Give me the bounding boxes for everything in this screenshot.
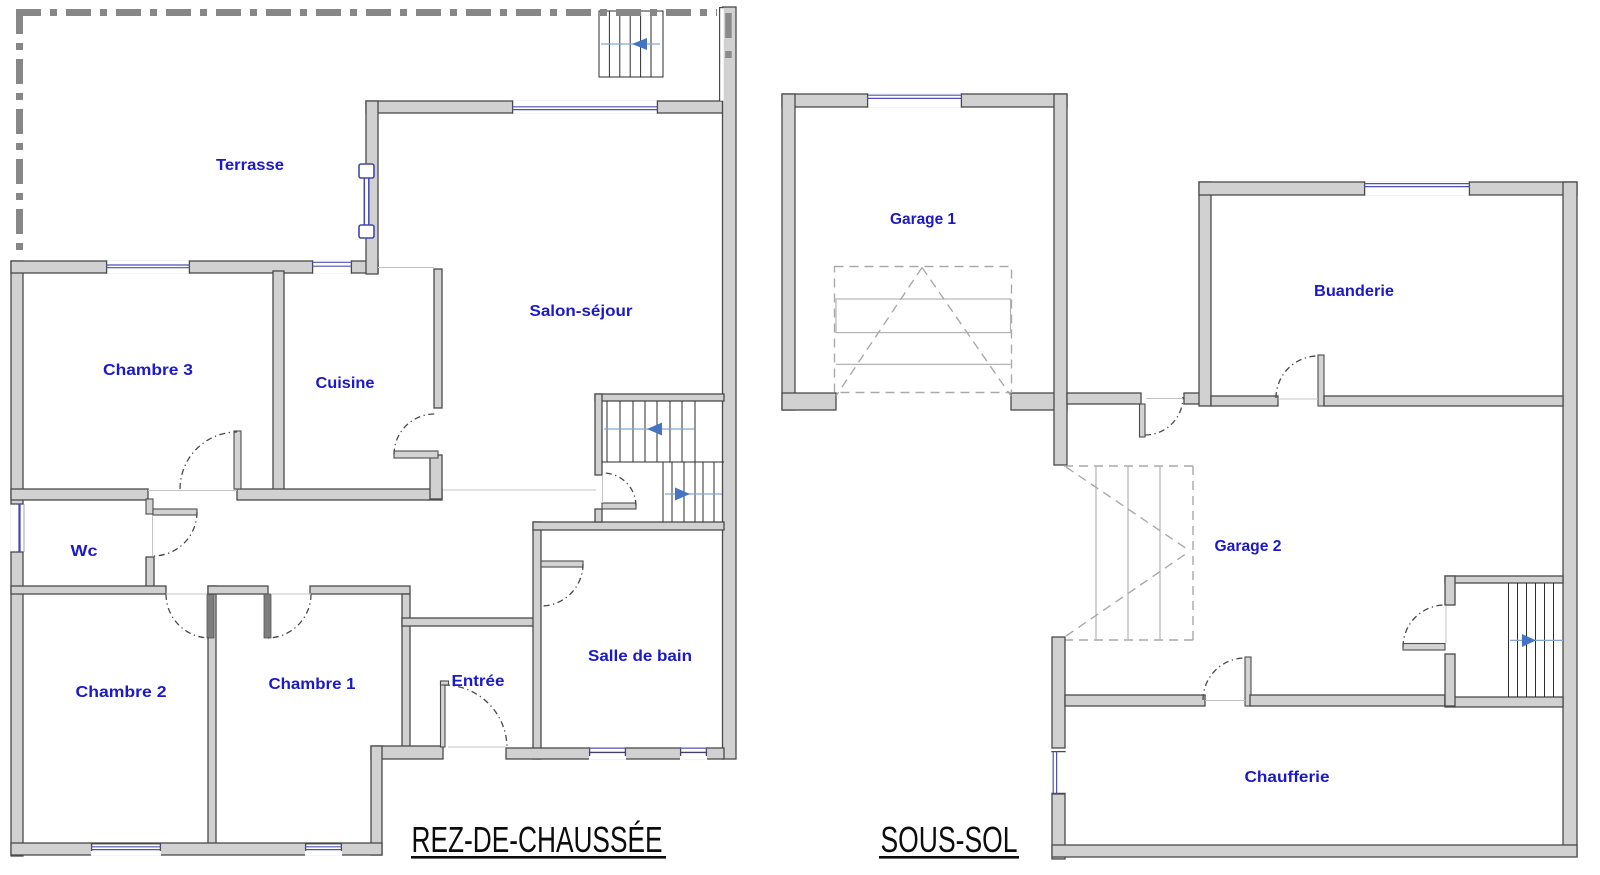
- svg-text:Chambre 3: Chambre 3: [103, 362, 193, 379]
- svg-text:Buanderie: Buanderie: [1314, 283, 1394, 300]
- svg-text:Chaufferie: Chaufferie: [1245, 769, 1330, 786]
- svg-text:Cuisine: Cuisine: [316, 375, 375, 392]
- svg-text:REZ-DE-CHAUSSÉE: REZ-DE-CHAUSSÉE: [412, 819, 663, 860]
- svg-text:SOUS-SOL: SOUS-SOL: [881, 819, 1018, 860]
- svg-text:Chambre 1: Chambre 1: [269, 676, 356, 693]
- svg-text:Entrée: Entrée: [452, 673, 505, 690]
- svg-text:Wc: Wc: [71, 543, 98, 560]
- svg-text:Chambre 2: Chambre 2: [76, 684, 167, 701]
- svg-text:Salon-séjour: Salon-séjour: [530, 303, 633, 320]
- svg-text:Terrasse: Terrasse: [216, 157, 284, 174]
- svg-text:Garage 1: Garage 1: [890, 211, 956, 228]
- svg-text:Salle de bain: Salle de bain: [588, 648, 692, 665]
- svg-text:Garage 2: Garage 2: [1215, 538, 1282, 555]
